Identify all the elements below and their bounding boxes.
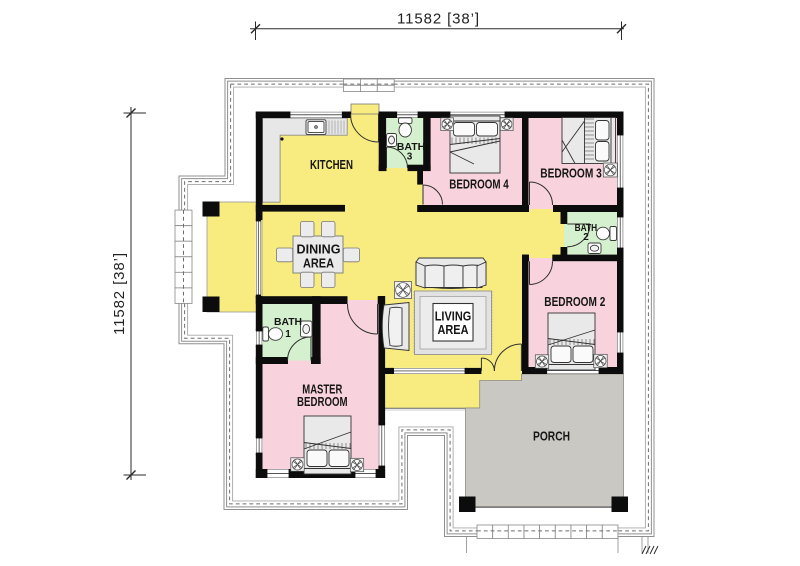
svg-text:BEDROOM 2: BEDROOM 2 (544, 294, 605, 309)
svg-text:1: 1 (285, 329, 291, 340)
svg-text:PORCH: PORCH (533, 429, 570, 443)
svg-text:KITCHEN: KITCHEN (310, 157, 353, 172)
svg-text:BEDROOM 4: BEDROOM 4 (449, 177, 509, 192)
svg-text:BEDROOM 3: BEDROOM 3 (540, 166, 602, 181)
svg-text:BATH: BATH (274, 317, 302, 328)
svg-text:AREA: AREA (303, 255, 335, 270)
svg-text:3: 3 (407, 151, 413, 162)
svg-text:11582 [38’]: 11582 [38’] (111, 253, 128, 335)
svg-text:BEDROOM: BEDROOM (297, 394, 348, 409)
svg-text:AREA: AREA (438, 322, 470, 337)
svg-text:2: 2 (583, 232, 589, 243)
svg-text:11582 [38’]: 11582 [38’] (397, 11, 479, 28)
svg-text:DINING: DINING (297, 242, 341, 257)
